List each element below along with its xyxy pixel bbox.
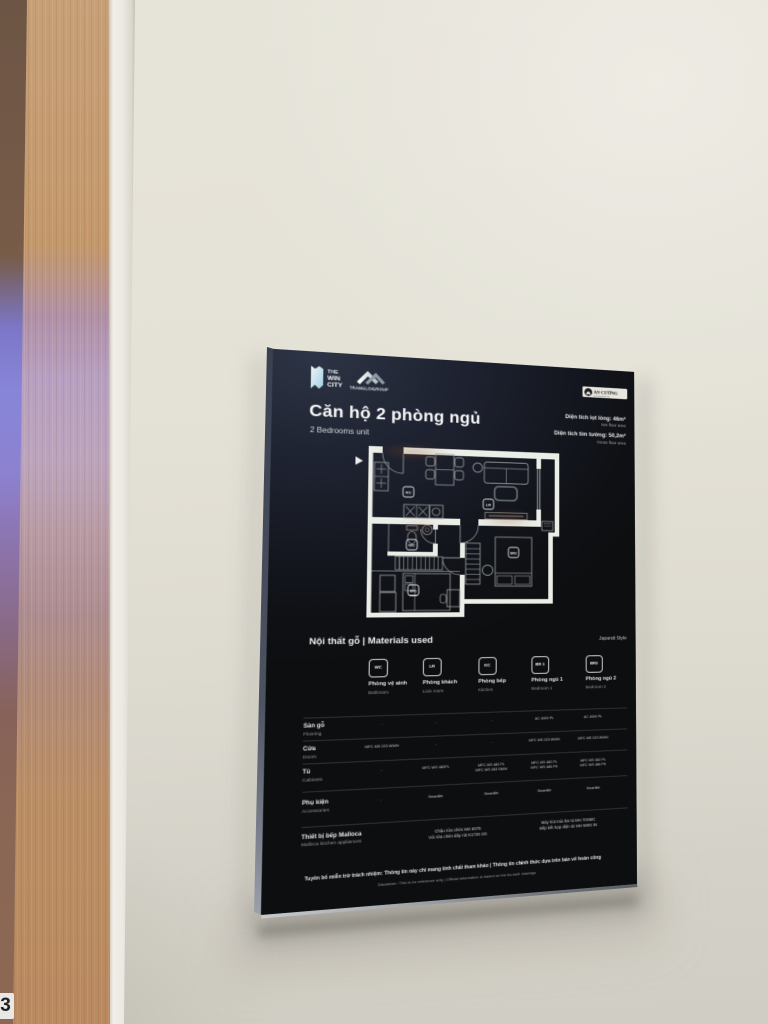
svg-text:BR2: BR2 (510, 552, 516, 556)
svg-text:LR: LR (486, 503, 491, 508)
svg-text:WC: WC (409, 543, 416, 548)
svg-text:CITY: CITY (327, 382, 343, 389)
svg-text:KC: KC (406, 490, 412, 495)
svg-text:BR1: BR1 (410, 589, 417, 593)
